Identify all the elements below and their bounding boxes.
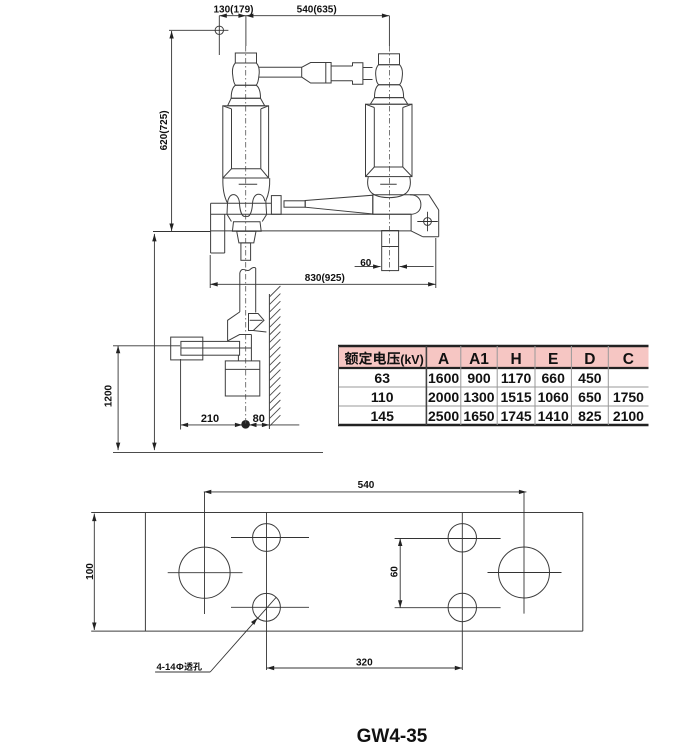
svg-text:1200: 1200 — [104, 384, 115, 407]
svg-text:60: 60 — [360, 258, 372, 269]
svg-text:620(725): 620(725) — [159, 110, 170, 150]
svg-text:GW4-35: GW4-35 — [357, 726, 428, 747]
svg-text:145: 145 — [371, 408, 395, 424]
svg-text:Φ: Φ — [176, 662, 184, 673]
svg-text:63: 63 — [374, 370, 390, 386]
svg-text:1650: 1650 — [463, 408, 494, 424]
svg-text:1600: 1600 — [428, 370, 459, 386]
svg-text:320: 320 — [356, 658, 373, 669]
svg-text:A: A — [438, 351, 449, 368]
svg-text:2100: 2100 — [613, 408, 644, 424]
svg-text:1515: 1515 — [501, 389, 532, 405]
svg-text:E: E — [548, 351, 558, 368]
svg-text:100: 100 — [85, 563, 96, 580]
svg-text:60: 60 — [389, 566, 400, 578]
svg-text:210: 210 — [201, 413, 219, 425]
svg-text:650: 650 — [578, 389, 602, 405]
svg-text:540: 540 — [358, 480, 375, 491]
svg-text:540(635): 540(635) — [297, 4, 337, 15]
svg-text:4-14: 4-14 — [157, 662, 177, 673]
svg-text:110: 110 — [371, 389, 394, 405]
svg-text:450: 450 — [578, 370, 602, 386]
svg-text:1745: 1745 — [501, 408, 532, 424]
svg-text:A1: A1 — [469, 351, 489, 368]
svg-text:825: 825 — [578, 408, 602, 424]
svg-text:1410: 1410 — [538, 408, 569, 424]
svg-text:1060: 1060 — [538, 389, 569, 405]
svg-text:C: C — [623, 351, 634, 368]
svg-text:80: 80 — [253, 413, 265, 425]
svg-text:830(925): 830(925) — [305, 273, 345, 284]
svg-text:660: 660 — [542, 370, 566, 386]
svg-text:2000: 2000 — [428, 389, 459, 405]
svg-text:900: 900 — [467, 370, 491, 386]
svg-text:2500: 2500 — [428, 408, 459, 424]
svg-text:130(179): 130(179) — [213, 4, 253, 15]
svg-text:(kV): (kV) — [400, 353, 424, 367]
svg-text:H: H — [510, 351, 521, 368]
svg-text:1750: 1750 — [613, 389, 644, 405]
svg-text:1170: 1170 — [501, 370, 532, 386]
svg-text:D: D — [584, 351, 595, 368]
svg-text:1300: 1300 — [463, 389, 494, 405]
